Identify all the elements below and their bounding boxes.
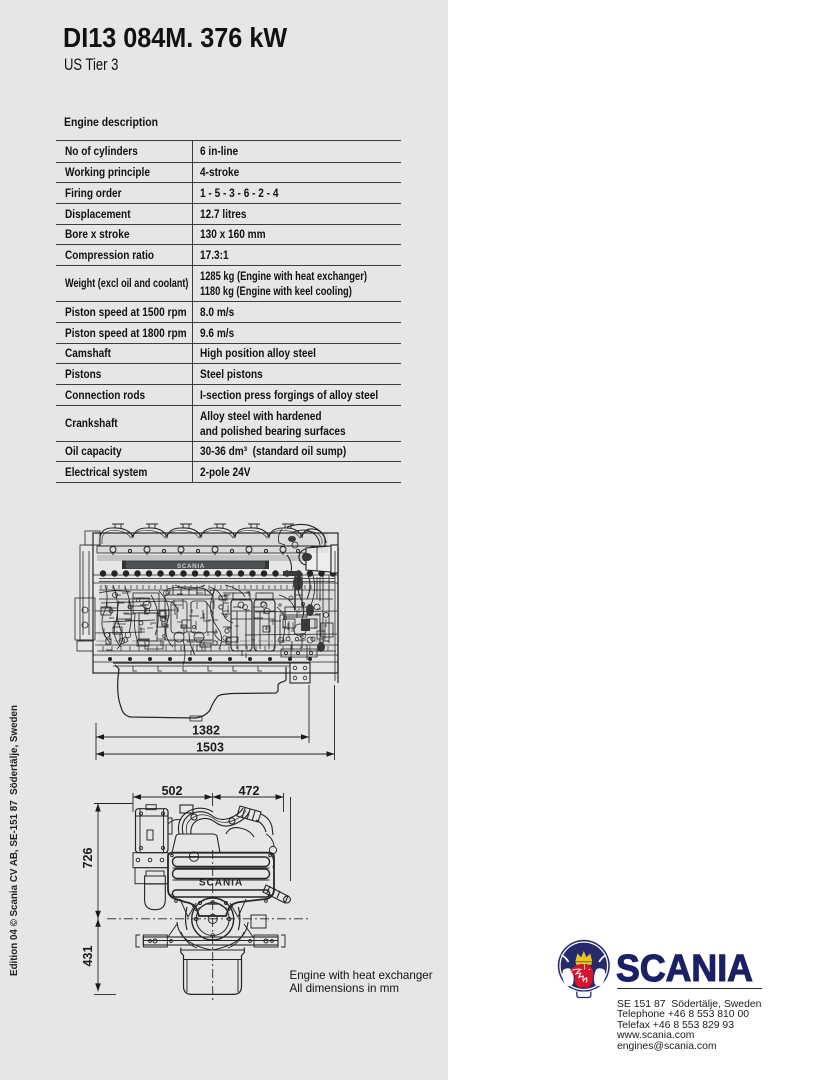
svg-text:472: 472 — [239, 784, 260, 798]
svg-text:1503: 1503 — [196, 741, 224, 755]
svg-text:SCANIA: SCANIA — [199, 878, 243, 889]
svg-text:431: 431 — [81, 946, 95, 967]
svg-text:SCANIA: SCANIA — [177, 563, 205, 570]
svg-text:1382: 1382 — [192, 724, 220, 738]
svg-text:502: 502 — [162, 784, 183, 798]
svg-text:726: 726 — [81, 848, 95, 869]
